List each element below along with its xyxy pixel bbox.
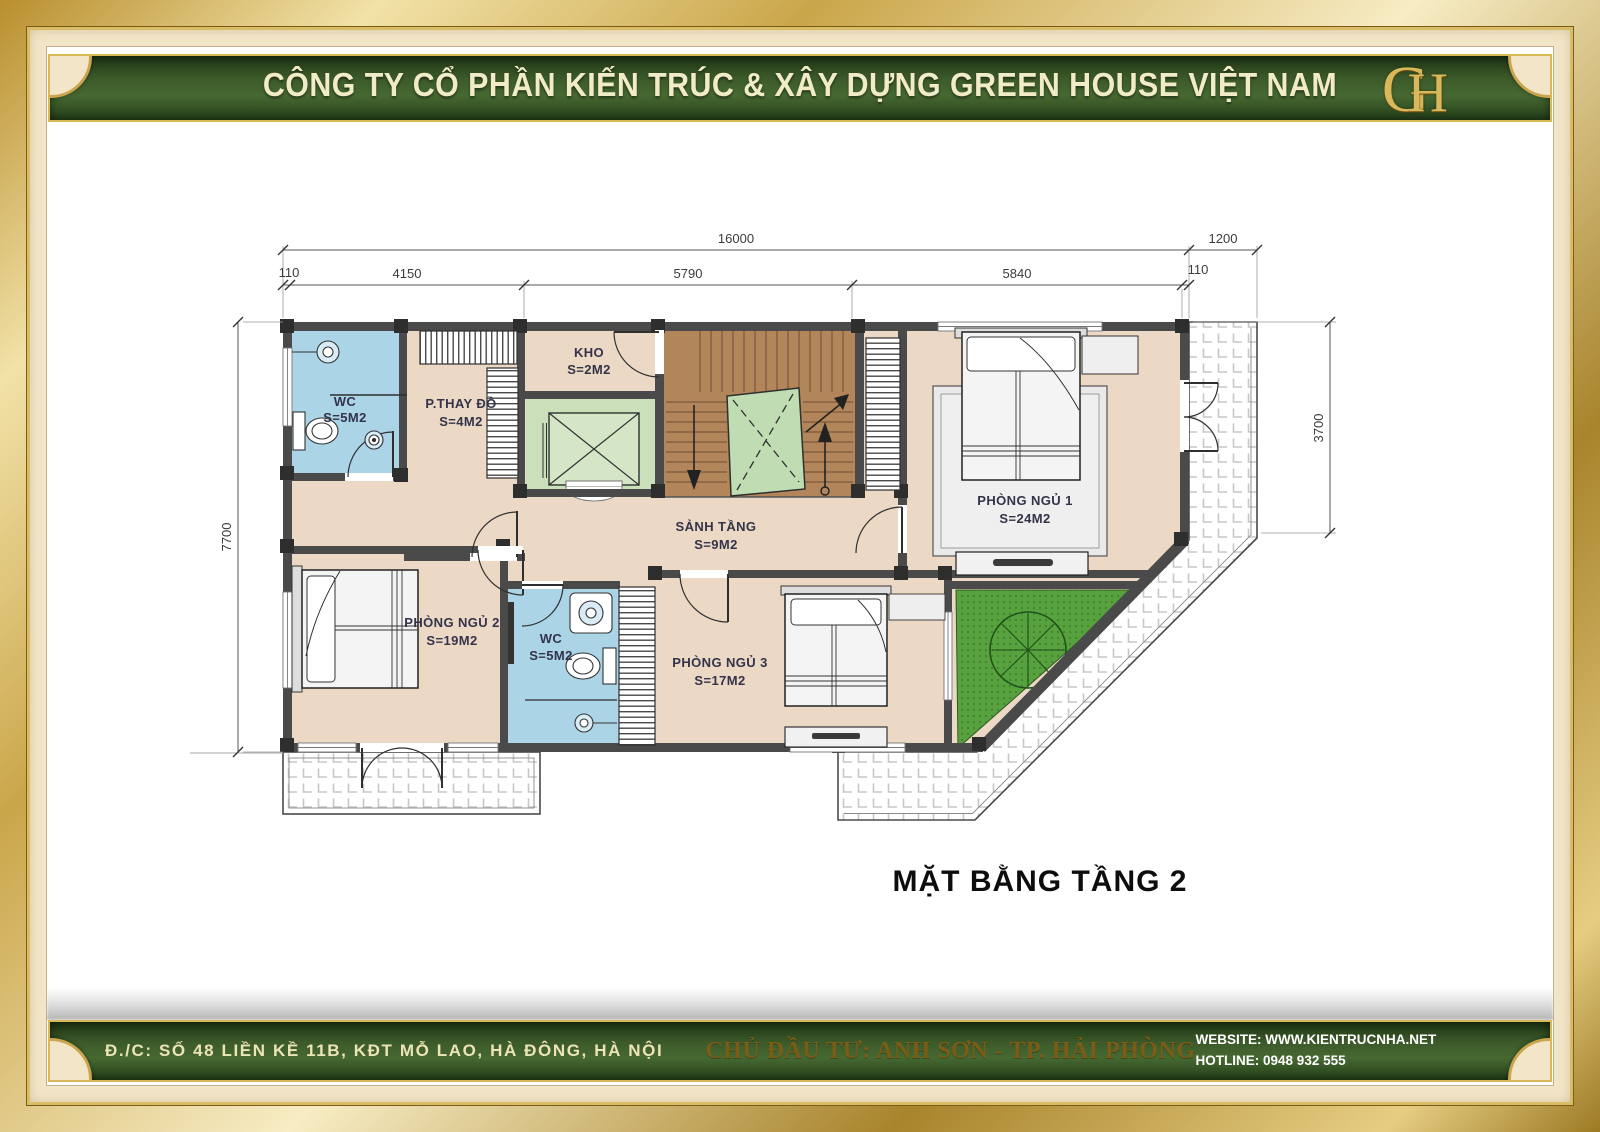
contact-block: WEBSITE: WWW.KIENTRUCNHA.NET HOTLINE: 09…	[1196, 1030, 1437, 1072]
hotline: HOTLINE: 0948 932 555	[1196, 1051, 1437, 1072]
investor-label: CHỦ ĐẦU TƯ: ANH SƠN - TP. HẢI PHÒNG	[705, 1038, 1195, 1065]
website: WEBSITE: WWW.KIENTRUCNHA.NET	[1196, 1030, 1437, 1051]
background-photo-edge	[47, 988, 1553, 1020]
footer-scallop-right	[1508, 1038, 1552, 1082]
drawing-area	[46, 46, 1554, 1086]
header-scallop-right	[1508, 54, 1552, 98]
header-scallop-left	[48, 54, 92, 98]
company-address: Đ./C: SỐ 48 LIỀN KỀ 11B, KĐT MỖ LAO, HÀ …	[105, 1041, 663, 1061]
gh-logo-icon: GH	[1382, 54, 1448, 122]
company-name: CÔNG TY CỔ PHẦN KIẾN TRÚC & XÂY DỰNG GRE…	[110, 66, 1490, 104]
header-banner: CÔNG TY CỔ PHẦN KIẾN TRÚC & XÂY DỰNG GRE…	[48, 54, 1552, 122]
footer-scallop-left	[48, 1038, 92, 1082]
footer-banner: Đ./C: SỐ 48 LIỀN KỀ 11B, KĐT MỖ LAO, HÀ …	[48, 1020, 1552, 1082]
framed-drawing-sheet: 16000 1200 110 4150 5790 5840 110 7700 3…	[0, 0, 1600, 1132]
